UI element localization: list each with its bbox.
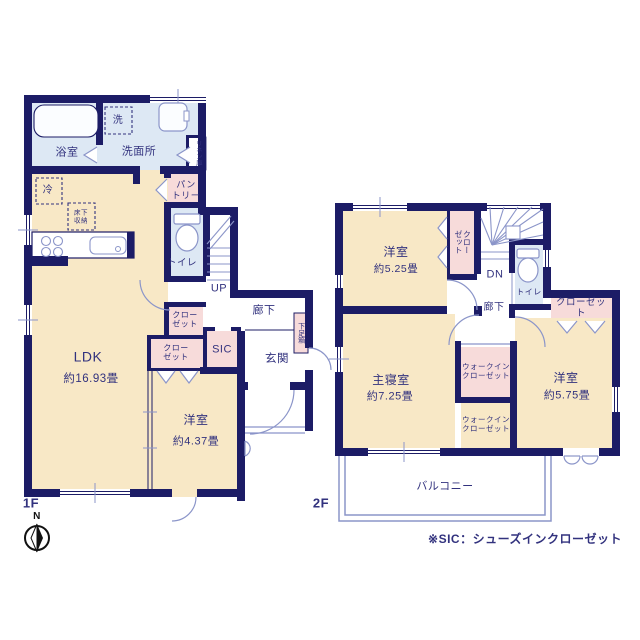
- stairs-down-label: DN: [487, 269, 504, 282]
- kitchen-sink: [90, 237, 126, 254]
- bedroom-575-label: 洋室: [553, 371, 578, 385]
- closet-horizontal-label: クローゼット: [552, 297, 611, 319]
- vanity-sink: [159, 103, 187, 131]
- door-arc-bedroom-south: [172, 497, 196, 521]
- north-label: N: [33, 511, 41, 523]
- hallway-1f-label: 廊下: [253, 305, 276, 318]
- floor1-label: 1F: [23, 495, 39, 510]
- master-label: 主寝室: [372, 373, 410, 387]
- bedroom-575-size-label: 約5.75畳: [544, 390, 590, 403]
- casement-window-arc: [582, 456, 598, 464]
- bedroom-525-size-label: 約5.25畳: [374, 263, 418, 275]
- ldk-size-label: 約16.93畳: [63, 373, 118, 387]
- casement-window-arc: [245, 441, 250, 456]
- hallway-2f-label: 廊下: [484, 302, 505, 314]
- entrance-label: 玄関: [265, 353, 289, 367]
- washer-label: 洗: [113, 115, 124, 127]
- closet-b-label: クロー ゼット: [163, 344, 189, 363]
- closet-a-label: クロー ゼット: [172, 311, 198, 330]
- north-compass: [25, 524, 49, 552]
- window: [543, 250, 551, 267]
- bathroom-label: 浴室: [56, 147, 79, 160]
- underfloor-label: 床下 収納: [74, 209, 88, 224]
- fridge-label: 冷: [43, 185, 54, 197]
- toilet-2f-label: トイレ: [516, 287, 542, 296]
- window: [612, 387, 620, 412]
- toilet-1f-label: トイレ: [167, 257, 197, 268]
- pantry-label: パン トリー: [172, 179, 201, 200]
- shoe-box-label: 下足箱: [297, 323, 304, 344]
- ldk-label: LDK: [74, 349, 103, 366]
- washroom-label: 洗面所: [122, 146, 157, 159]
- vanity-faucet: [184, 111, 189, 121]
- sic-footnote: ※SIC：シューズインクローゼット: [428, 532, 622, 546]
- floor2-plan: [329, 197, 620, 521]
- bedroom-437-size-label: 約4.37畳: [173, 436, 219, 449]
- floorplan-canvas: 浴室 洗面所 洗 リネン庫 冷 パン トリー 床下 収納 トイレ UP 廊下 下…: [0, 0, 640, 640]
- door-arc-entrance: [309, 348, 331, 370]
- bedroom-525-label: 洋室: [383, 245, 408, 259]
- bathtub: [34, 105, 98, 137]
- stairs-1f: [207, 216, 234, 280]
- room-bedroom-437: [150, 371, 237, 497]
- stairs-up-label: UP: [211, 283, 227, 296]
- floor2-label: 2F: [313, 495, 329, 510]
- closet-vertical-label: クロー ゼット: [454, 230, 471, 254]
- sic-label: SIC: [212, 344, 232, 357]
- linen-label: リネン庫: [194, 140, 201, 166]
- toilet-fixture-1f: [174, 214, 200, 251]
- wic-upper-label: ウォークイン クローゼット: [462, 363, 510, 381]
- wic-lower-label: ウォークイン クローゼット: [462, 416, 510, 434]
- window: [487, 203, 540, 211]
- door-arc-bedroom-525: [447, 280, 477, 310]
- balcony-label: バルコニー: [416, 481, 473, 494]
- master-size-label: 約7.25畳: [367, 391, 413, 404]
- toilet-fixture-2f: [517, 249, 539, 282]
- window: [335, 275, 343, 288]
- bedroom-437-label: 洋室: [183, 413, 208, 427]
- casement-window-arc: [564, 456, 580, 464]
